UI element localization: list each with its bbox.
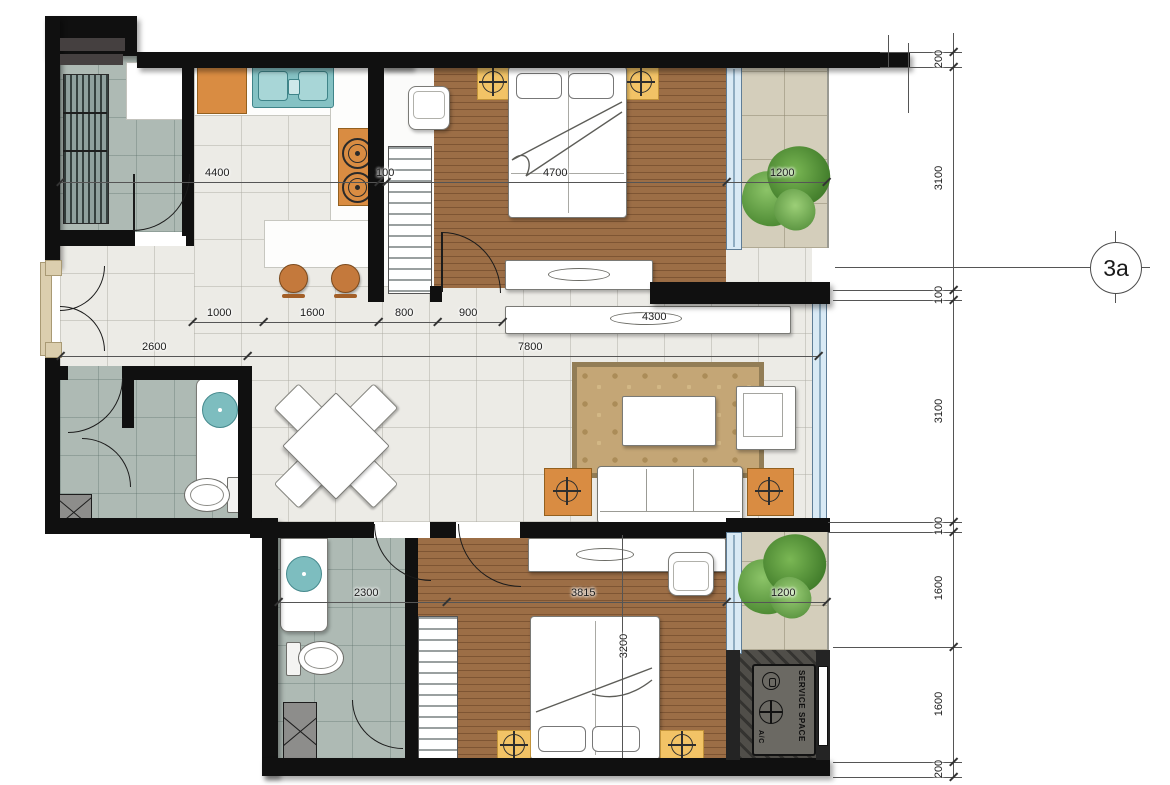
bathroom1-sink-icon [202,392,238,428]
service-door-slot [818,666,828,746]
dim-chain-line [953,33,954,778]
tv-icon [576,548,634,561]
ac-label: A/C [757,730,764,744]
dim-chain-1600-b: 1600 [933,692,945,716]
tv-icon [548,268,610,281]
wall-left-upper [45,16,60,266]
wall-mid-bottom-a [250,522,374,538]
dim-line-bottom-row [278,602,826,603]
living-sofa [597,466,743,524]
blanket-fold [508,90,626,210]
wall-storage-bottom-a [60,230,135,246]
bar-stool [279,264,308,293]
bathroom1-toilet-icon [184,478,230,512]
dim-chain-3100-b: 3100 [933,399,945,423]
wall-mid-bottom-b [430,522,456,538]
blanket-fold [532,660,656,722]
bedroom2-desk-chair [668,552,714,596]
wall-bottom [262,758,830,776]
dim-line-mid-row [192,322,502,323]
dim-chain-100-a: 100 [933,286,945,304]
wall-storage-right [182,56,194,236]
dim-chain-100-b: 100 [933,517,945,535]
coffee-table [622,396,716,446]
dim-line-width-row [60,356,818,357]
grid-marker-label: 3a [1103,255,1129,282]
plant-icon [742,146,834,244]
storage-shelf-line-b [63,150,107,152]
armchair-seat [743,393,783,437]
dim-4300: 4300 [642,311,666,323]
dim-7800: 7800 [518,341,542,353]
wall-left-lower [45,346,60,532]
dim-2300: 2300 [354,587,378,599]
kitchen-bar-counter [264,220,372,268]
table-lamp-icon [630,71,652,93]
dim-chain-200-top: 200 [933,50,945,68]
dim-line-top-row [60,182,826,183]
wall-service-left [726,650,740,760]
wall-bath1-top-a [60,366,68,380]
kitchen-sink [252,64,334,108]
wall-left-bottom-vertical [262,518,278,776]
grid-nub-top [1115,231,1116,242]
bedroom1-door-leaf [441,232,443,292]
sink-faucet [288,79,300,95]
window-bedroom1 [726,66,742,250]
water-heater-icon [762,672,780,690]
wall-bath1-bottom [45,518,275,534]
grid-line-3a [835,267,1090,268]
dim-3200: 3200 [618,634,630,658]
table-lamp-icon [671,734,693,756]
bedroom1-armchair [408,86,450,130]
table-lamp-icon [556,480,578,502]
storage-appliance [126,62,184,120]
storage-slatted-unit [63,74,109,224]
dim-100-wall: 100 [376,167,394,179]
sink-basin-right [298,71,328,101]
table-lamp-icon [482,71,504,93]
bar-stool [331,264,360,293]
bathroom2-sink-icon [286,556,322,592]
table-lamp-icon [503,734,525,756]
storage-shelf-line-a [63,112,107,114]
bedroom1-wardrobe [388,146,432,294]
dim-900: 900 [459,307,477,319]
window-living [812,300,827,526]
dim-800: 800 [395,307,413,319]
wall-storage-bottom-b [186,230,194,246]
armchair-seat [413,91,445,119]
living-armchair [736,386,796,450]
bathroom2-toilet-icon [298,641,344,675]
pillow [538,726,586,752]
wall-top-b [380,52,910,68]
dim-chain-200-bottom: 200 [933,760,945,778]
wall-balcony2-top [726,518,830,532]
grid-marker-3a: 3a [1090,242,1142,294]
wall-top-left-inset-b [60,54,123,65]
wall-bath1-right [238,366,252,532]
dim-4700: 4700 [543,167,567,179]
dim-1000: 1000 [207,307,231,319]
dim-2600: 2600 [142,341,166,353]
wall-bedroom1-living [650,282,830,304]
dim-1600-a: 1600 [300,307,324,319]
wall-mid-bottom-c [520,522,726,538]
wall-bath1-partition [122,366,134,428]
table-lamp-icon [758,480,780,502]
shaft2-icon [283,702,317,760]
plant-icon [738,534,828,630]
service-space-label: SERVICE SPACE [797,670,806,742]
chair-seat [673,561,709,591]
dim-4400: 4400 [205,167,229,179]
dim-1200-balcony1: 1200 [770,167,794,179]
wall-top-left-inset-a [60,38,125,51]
wall-bath1-top-b [122,366,250,380]
bedroom2-wardrobe [418,616,458,760]
floor-plan: SERVICE SPACE A/C 4400 100 4700 1200 100… [0,0,1170,785]
exhaust-fan-icon [759,700,783,724]
dim-chain-1600-a: 1600 [933,576,945,600]
pillow [592,726,640,752]
dim-3815: 3815 [571,587,595,599]
sink-basin-left [258,71,288,101]
dim-1200-balcony2: 1200 [771,587,795,599]
dim-chain-3100-a: 3100 [933,166,945,190]
